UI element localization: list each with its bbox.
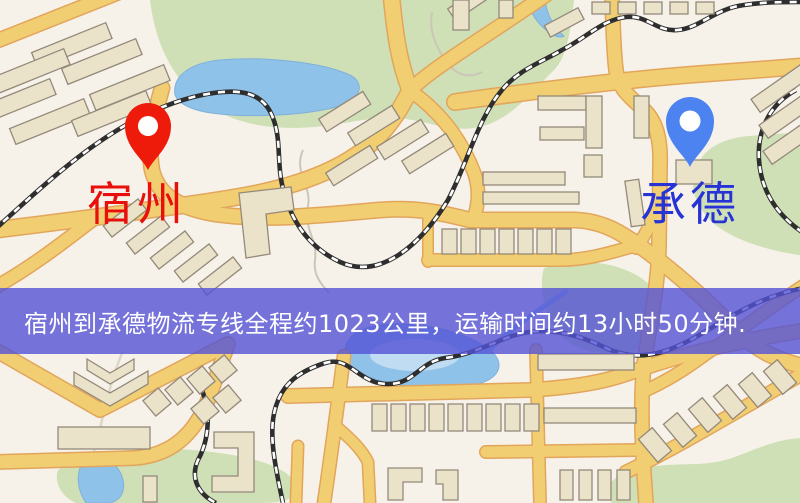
route-info-banner: 宿州到承德物流专线全程约1023公里，运输时间约13小时50分钟.	[0, 288, 800, 354]
origin-city-label: 宿州	[87, 181, 187, 227]
map-background	[0, 0, 800, 503]
logistics-route-map-image: 宿州 承德 宿州到承德物流专线全程约1023公里，运输时间约13小时50分钟.	[0, 0, 800, 503]
destination-city-label: 承德	[640, 181, 740, 227]
route-info-text: 宿州到承德物流专线全程约1023公里，运输时间约13小时50分钟.	[0, 304, 746, 339]
